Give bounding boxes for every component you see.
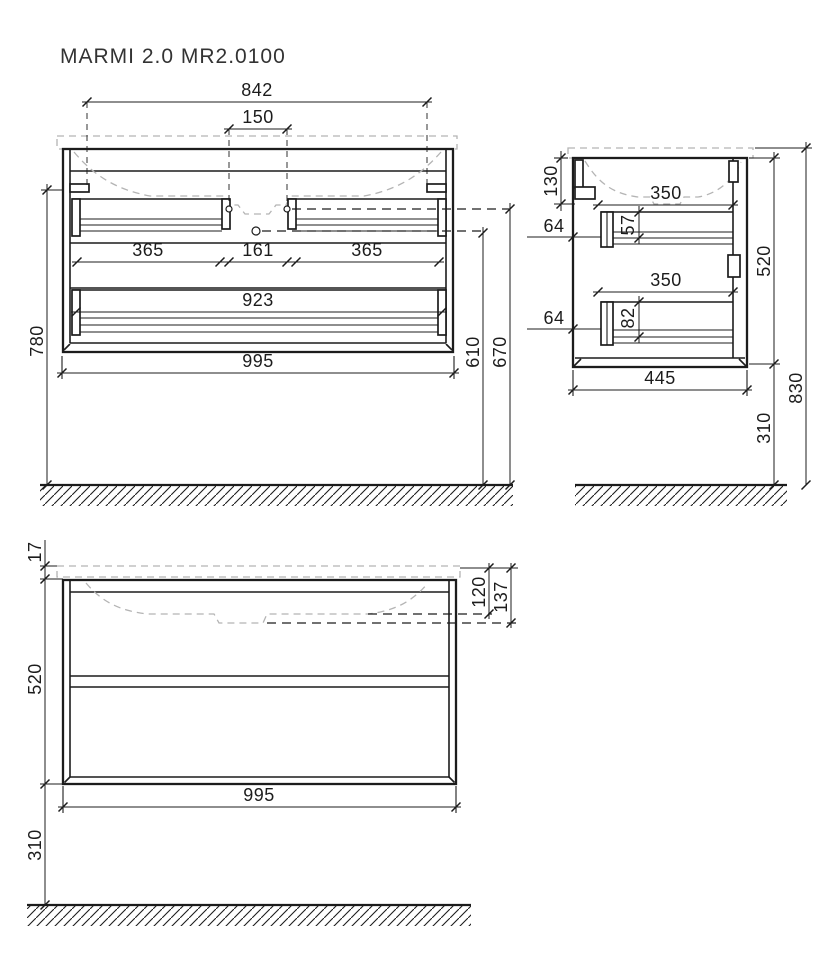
front-dim-923: 923 xyxy=(71,290,447,317)
drawing-title: MARMI 2.0 MR2.0100 xyxy=(60,45,286,68)
dim-label: 310 xyxy=(25,829,45,861)
back-dim-17-520-310: 17 520 310 xyxy=(25,540,63,910)
dim-label: 923 xyxy=(242,290,274,310)
dim-label: 120 xyxy=(469,576,489,608)
back-reference-lines xyxy=(267,614,516,623)
front-dim-842: 842 xyxy=(82,80,432,190)
front-dim-365-161-365: 365 161 365 xyxy=(72,240,444,267)
front-dim-670: 670 xyxy=(490,203,515,490)
front-ground xyxy=(40,485,513,506)
dim-label: 150 xyxy=(242,107,274,127)
dim-label: 350 xyxy=(650,183,682,203)
side-ground xyxy=(575,485,787,506)
back-dim-120-137: 120 137 xyxy=(460,563,518,628)
side-dim-82: 82 xyxy=(618,296,644,343)
dim-label: 995 xyxy=(243,785,275,805)
side-back-rail xyxy=(575,160,583,188)
technical-drawing-page: MARMI 2.0 MR2.0100 xyxy=(0,0,840,970)
side-dim-350-bottom: 350 xyxy=(593,270,738,297)
dim-label: 520 xyxy=(25,663,45,695)
dim-label: 17 xyxy=(25,541,45,562)
dim-label: 130 xyxy=(541,165,561,197)
side-dim-445: 445 xyxy=(568,368,752,396)
back-dim-995: 995 xyxy=(58,785,461,813)
dim-label: 610 xyxy=(463,336,483,368)
dim-label: 670 xyxy=(490,336,510,368)
front-basin-outline xyxy=(74,152,441,214)
dim-label: 161 xyxy=(242,240,274,260)
dim-label: 520 xyxy=(754,245,774,277)
side-dim-130: 130 xyxy=(541,151,575,211)
back-cabinet-structure xyxy=(65,580,455,783)
dim-label: 365 xyxy=(351,240,383,260)
dim-label: 842 xyxy=(241,80,273,100)
front-dim-150: 150 xyxy=(224,107,292,206)
side-dim-350-top: 350 xyxy=(593,183,738,210)
side-dim-64-top: 64 xyxy=(527,216,601,242)
dim-label: 57 xyxy=(618,214,638,235)
front-dim-995: 995 xyxy=(57,351,459,379)
side-countertop-outline xyxy=(568,148,753,158)
front-view: 842 150 365 161 365 xyxy=(27,80,515,506)
side-dim-520-310: 520 310 xyxy=(749,152,780,490)
dim-label: 310 xyxy=(754,412,774,444)
side-view: 130 350 57 64 350 xyxy=(527,142,812,506)
front-countertop-outline xyxy=(57,136,457,149)
side-dim-64-bottom: 64 xyxy=(527,308,601,334)
dim-label: 137 xyxy=(491,581,511,613)
back-ground xyxy=(27,905,471,926)
front-reference-lines xyxy=(226,206,510,235)
dim-label: 780 xyxy=(27,325,47,357)
side-mount-bracket xyxy=(575,187,595,199)
front-right-mount-clip xyxy=(427,184,446,192)
front-dim-610: 610 xyxy=(463,227,488,490)
side-handle-recess xyxy=(728,255,740,277)
front-left-mount-clip xyxy=(70,184,89,192)
dim-label: 350 xyxy=(650,270,682,290)
front-dim-780: 780 xyxy=(27,184,63,490)
dim-label: 64 xyxy=(543,308,564,328)
dim-label: 445 xyxy=(644,368,676,388)
dim-label: 995 xyxy=(242,351,274,371)
dim-label: 82 xyxy=(618,307,638,328)
front-upper-left-drawer xyxy=(72,199,230,236)
side-front-rail xyxy=(729,161,738,182)
back-basin-outline xyxy=(86,583,428,623)
vanity-dimension-drawing: MARMI 2.0 MR2.0100 xyxy=(0,0,840,970)
dim-label: 64 xyxy=(543,216,564,236)
front-fixing-hole-left xyxy=(226,206,232,212)
dim-label: 830 xyxy=(786,372,806,404)
back-cabinet-body xyxy=(63,580,456,784)
back-countertop-outline xyxy=(57,566,460,577)
front-drain-point xyxy=(252,227,260,235)
back-view: 17 520 310 120 137 995 xyxy=(25,540,518,926)
front-fixing-hole-right xyxy=(284,206,290,212)
dim-label: 365 xyxy=(132,240,164,260)
